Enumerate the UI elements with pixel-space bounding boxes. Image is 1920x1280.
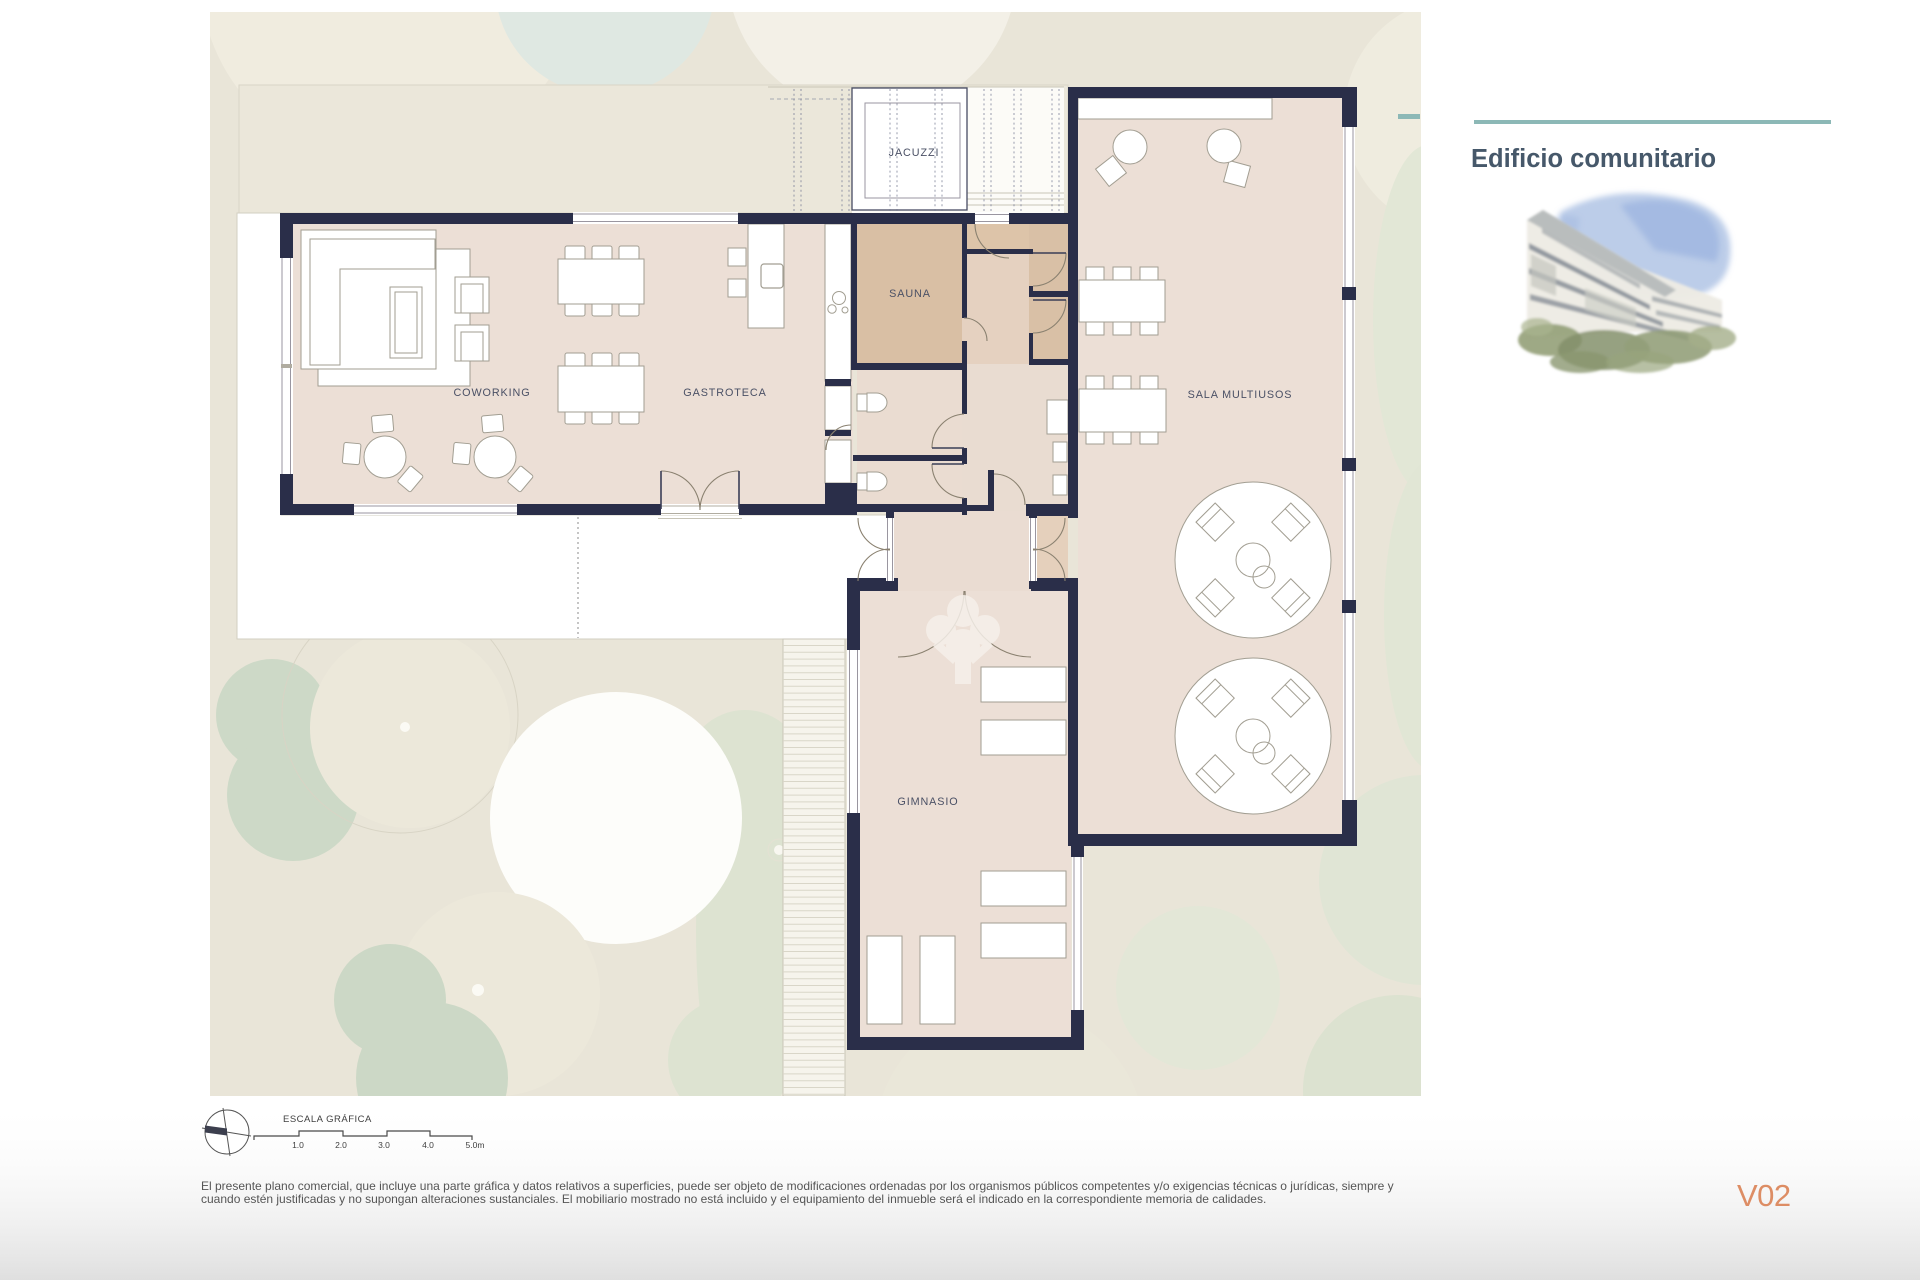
- svg-text:5.0m: 5.0m: [466, 1140, 485, 1150]
- svg-text:1.0: 1.0: [292, 1140, 304, 1150]
- svg-text:3.0: 3.0: [378, 1140, 390, 1150]
- svg-text:GASTROTECA: GASTROTECA: [683, 387, 766, 399]
- svg-text:COWORKING: COWORKING: [453, 387, 530, 399]
- svg-text:SALA MULTIUSOS: SALA MULTIUSOS: [1188, 389, 1293, 401]
- svg-text:GIMNASIO: GIMNASIO: [897, 796, 958, 808]
- svg-text:Edificio comunitario: Edificio comunitario: [1471, 145, 1716, 173]
- svg-text:JACUZZI: JACUZZI: [889, 147, 940, 159]
- svg-text:SAUNA: SAUNA: [889, 288, 931, 300]
- svg-text:El presente plano comercial, q: El presente plano comercial, que incluye…: [201, 1179, 1394, 1193]
- svg-text:V02: V02: [1737, 1178, 1791, 1213]
- svg-text:4.0: 4.0: [422, 1140, 434, 1150]
- svg-text:cuando estén justificadas y no: cuando estén justificadas y no supongan …: [201, 1192, 1266, 1206]
- svg-text:ESCALA GRÁFICA: ESCALA GRÁFICA: [283, 1114, 372, 1125]
- svg-text:2.0: 2.0: [335, 1140, 347, 1150]
